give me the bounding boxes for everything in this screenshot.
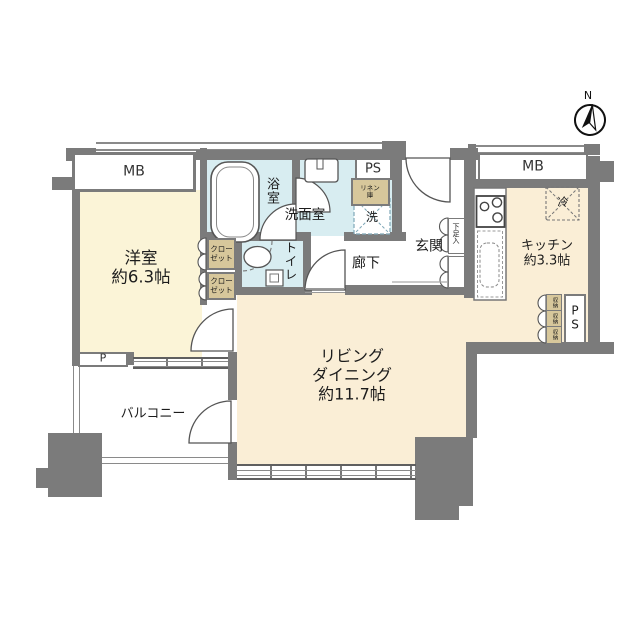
closet-upper-label: クロー ゼット [210,245,233,262]
living-line1: リビング [320,347,384,366]
storage-divider [547,326,561,327]
kitchen-name: キッチン [521,239,573,254]
living-line2: ダイニング [312,366,392,385]
kitchen-area: 約3.3帖 [524,254,571,269]
floor-plan: N MB MB PS リネン 庫 浴室 洗面室 洗 トイレ クロー ゼット クロ… [0,0,640,640]
washer-label: 洗 [366,210,378,224]
hallway-label: 廊下 [352,256,380,273]
toilet-bowl-icon [244,247,271,268]
closet-doors-arcs [198,238,206,300]
living-dining-label: リビング ダイニング 約11.7帖 [312,348,392,405]
entry-door-arc [406,158,450,202]
kitchen-storage-doors-arcs [538,295,546,343]
shoe-cabinet-label: 下足入 [452,223,459,244]
pipe-space-bottom-label: PS [568,304,582,333]
storage-label-3: 収納 [551,329,557,340]
toilet-label: トイレ [283,241,296,282]
balcony-label: バルコニー [121,406,186,421]
washroom-label: 洗面室 [285,208,326,224]
faucet-icon [317,159,323,169]
linen-line2: 庫 [367,191,374,199]
storage-divider [547,310,561,311]
bathroom-label: 浴室 [265,177,278,205]
toilet-tank-icon [266,270,283,286]
pump-label: P [100,353,107,366]
storage-label-2: 収納 [551,313,557,324]
meter-box-right-label: MB [522,159,544,176]
fixtures-layer: N [0,0,640,640]
fridge-label: 冷 [558,197,569,210]
western-room-area: 約6.3帖 [111,268,170,287]
closet-line2: ゼット [210,253,233,262]
hallway-living-door-arc [305,250,345,290]
living-area: 約11.7帖 [318,384,386,403]
compass [573,102,607,137]
balcony-door-arc [189,401,231,443]
western-room-name: 洋室 [125,249,158,268]
western-room-label: 洋室 約6.3帖 [111,249,170,288]
western-door-arc [191,309,233,351]
closet-line2: ゼット [210,285,233,294]
entrance-label: 玄関 [415,239,443,256]
compass-north-label: N [584,89,592,102]
stove-icon [477,196,505,227]
storage-label-1: 収納 [551,297,557,308]
linen-label: リネン 庫 [360,185,380,199]
kitchen-label: キッチン 約3.3帖 [521,239,573,270]
meter-box-left-label: MB [123,164,145,181]
pipe-space-top-label: PS [365,161,381,176]
closet-lower-label: クロー ゼット [210,277,233,294]
shoe-cabinet-lower-box [448,256,465,288]
